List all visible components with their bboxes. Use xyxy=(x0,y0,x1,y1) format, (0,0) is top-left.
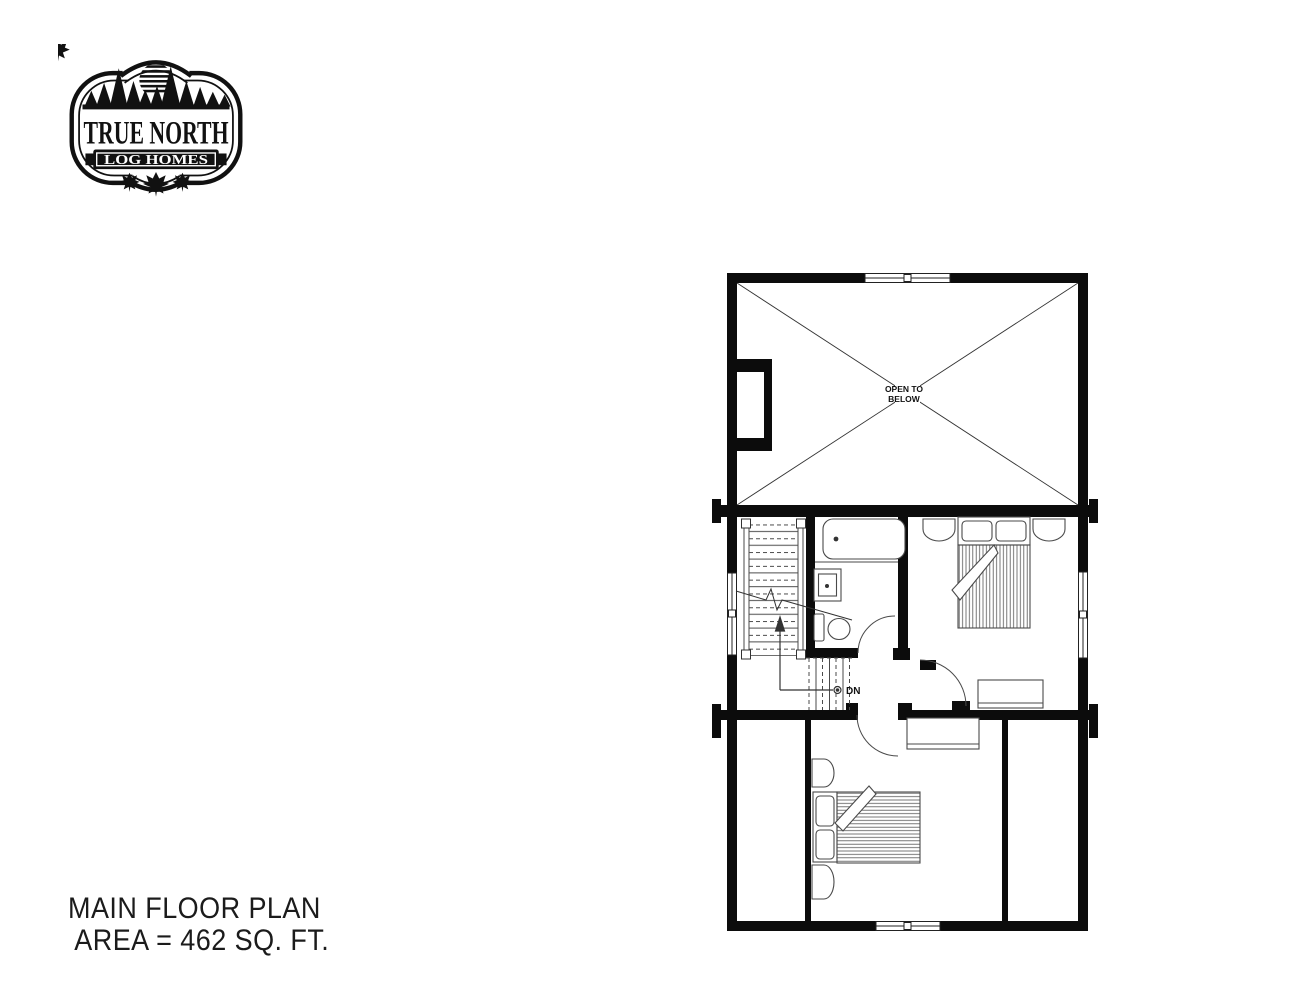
plan-caption: MAIN FLOOR PLAN AREA = 462 SQ. FT. xyxy=(68,893,329,957)
bathtub xyxy=(815,519,905,562)
dresser xyxy=(978,680,1043,708)
window-bottom xyxy=(876,922,940,931)
pillow xyxy=(816,796,834,826)
bed xyxy=(813,786,920,863)
nightstand xyxy=(923,519,955,541)
pillow xyxy=(962,521,992,541)
bedroom-1 xyxy=(923,517,1065,708)
window-right xyxy=(1079,572,1088,658)
nightstand xyxy=(812,759,834,787)
nightstand xyxy=(812,865,834,899)
plan-area: AREA = 462 SQ. FT. xyxy=(68,925,329,957)
stairs-down-label: DN xyxy=(846,686,860,697)
bathroom xyxy=(814,519,905,641)
bathroom-door-arc xyxy=(858,616,895,653)
open-to-below-label-1: OPEN TO xyxy=(885,384,923,394)
chimney xyxy=(729,359,772,451)
window-left xyxy=(728,573,737,655)
pillow xyxy=(996,521,1026,541)
nightstand xyxy=(1033,519,1065,541)
dresser xyxy=(907,718,979,749)
open-to-below-label-2: BELOW xyxy=(888,394,921,404)
window-top xyxy=(865,274,950,283)
floor-plan-svg: OPEN TO BELOW xyxy=(0,0,1296,1000)
floor-plan-drawing: OPEN TO BELOW xyxy=(0,0,1296,1000)
sink xyxy=(814,569,841,601)
bedroom2-door-arc xyxy=(857,715,898,756)
bed xyxy=(952,517,1030,628)
plan-title: MAIN FLOOR PLAN xyxy=(68,893,329,925)
open-to-below-room: OPEN TO BELOW xyxy=(737,283,1078,505)
bedroom-2 xyxy=(812,718,979,899)
pillow xyxy=(816,830,834,859)
